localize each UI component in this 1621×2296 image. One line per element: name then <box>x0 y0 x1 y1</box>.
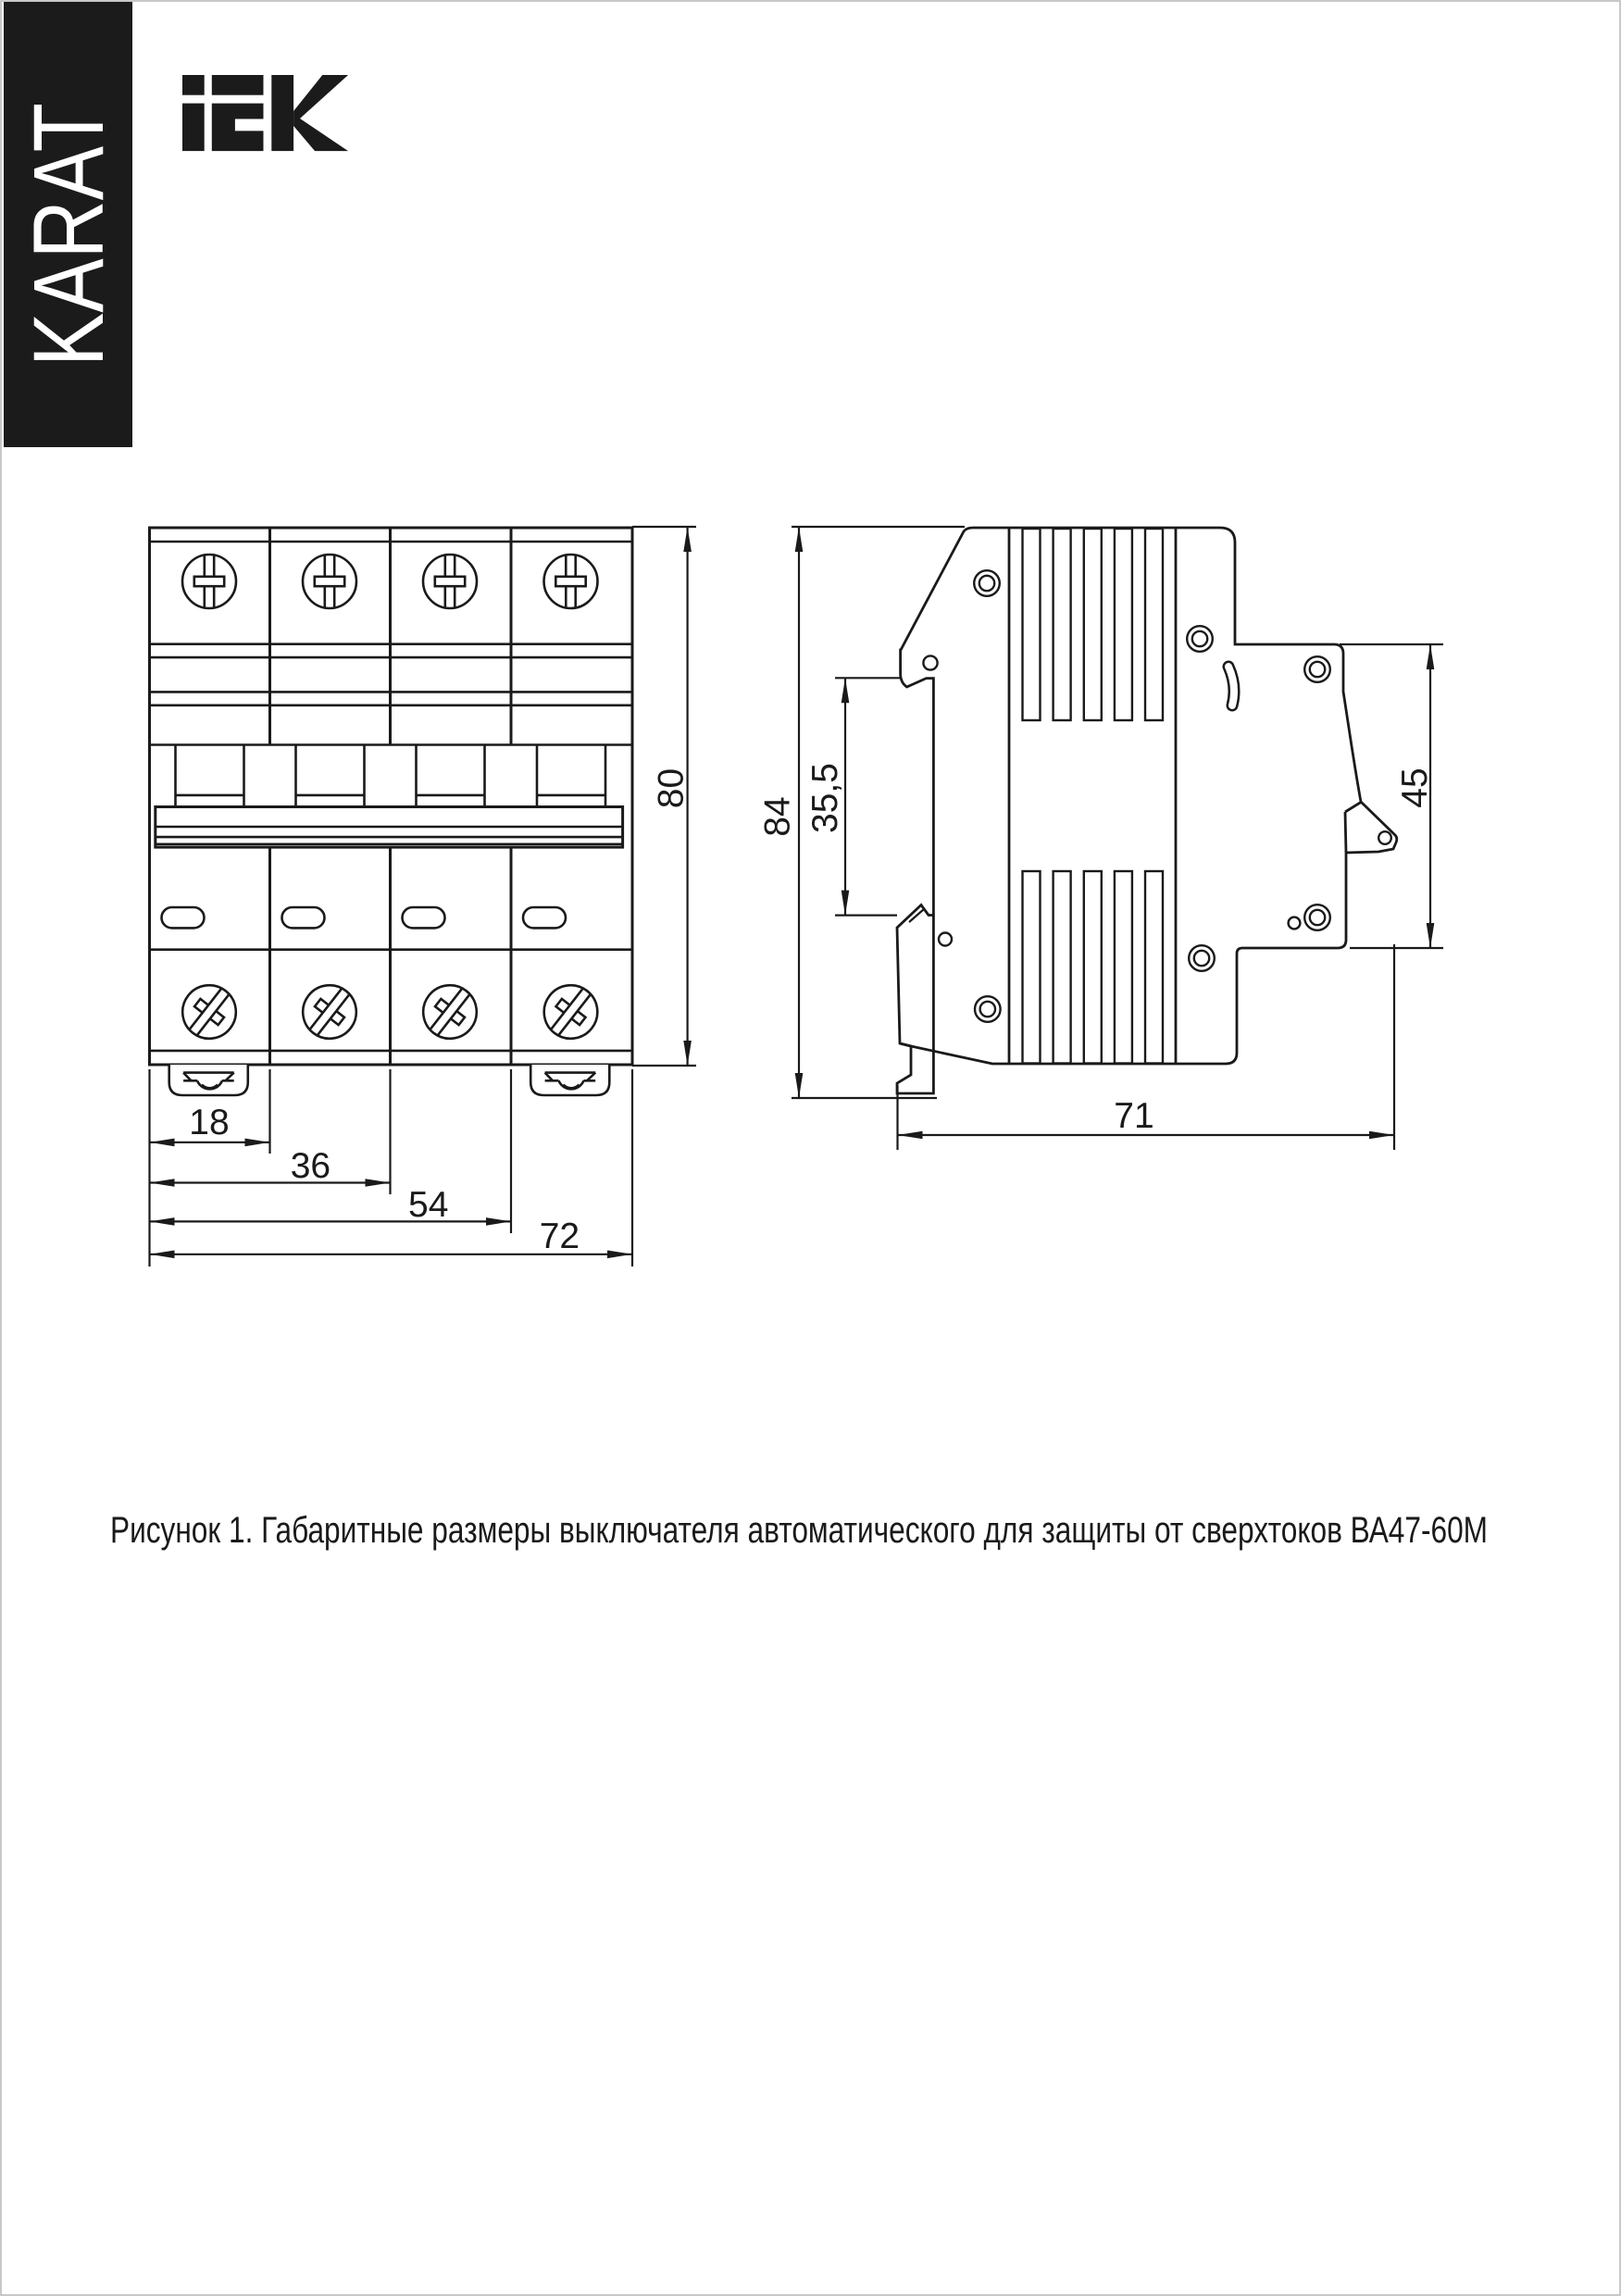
svg-text:Рисунок 1. Габаритные размеры: Рисунок 1. Габаритные размеры выключател… <box>110 1510 1488 1551</box>
svg-text:45: 45 <box>1395 767 1435 807</box>
svg-text:KARAT: KARAT <box>12 103 124 367</box>
svg-text:80: 80 <box>652 768 692 808</box>
svg-text:71: 71 <box>1114 1096 1153 1136</box>
svg-text:72: 72 <box>540 1217 580 1256</box>
svg-text:36: 36 <box>291 1146 330 1186</box>
svg-text:18: 18 <box>189 1103 229 1142</box>
svg-text:54: 54 <box>408 1185 448 1225</box>
svg-text:35,5: 35,5 <box>805 763 845 833</box>
svg-text:84: 84 <box>758 796 798 836</box>
